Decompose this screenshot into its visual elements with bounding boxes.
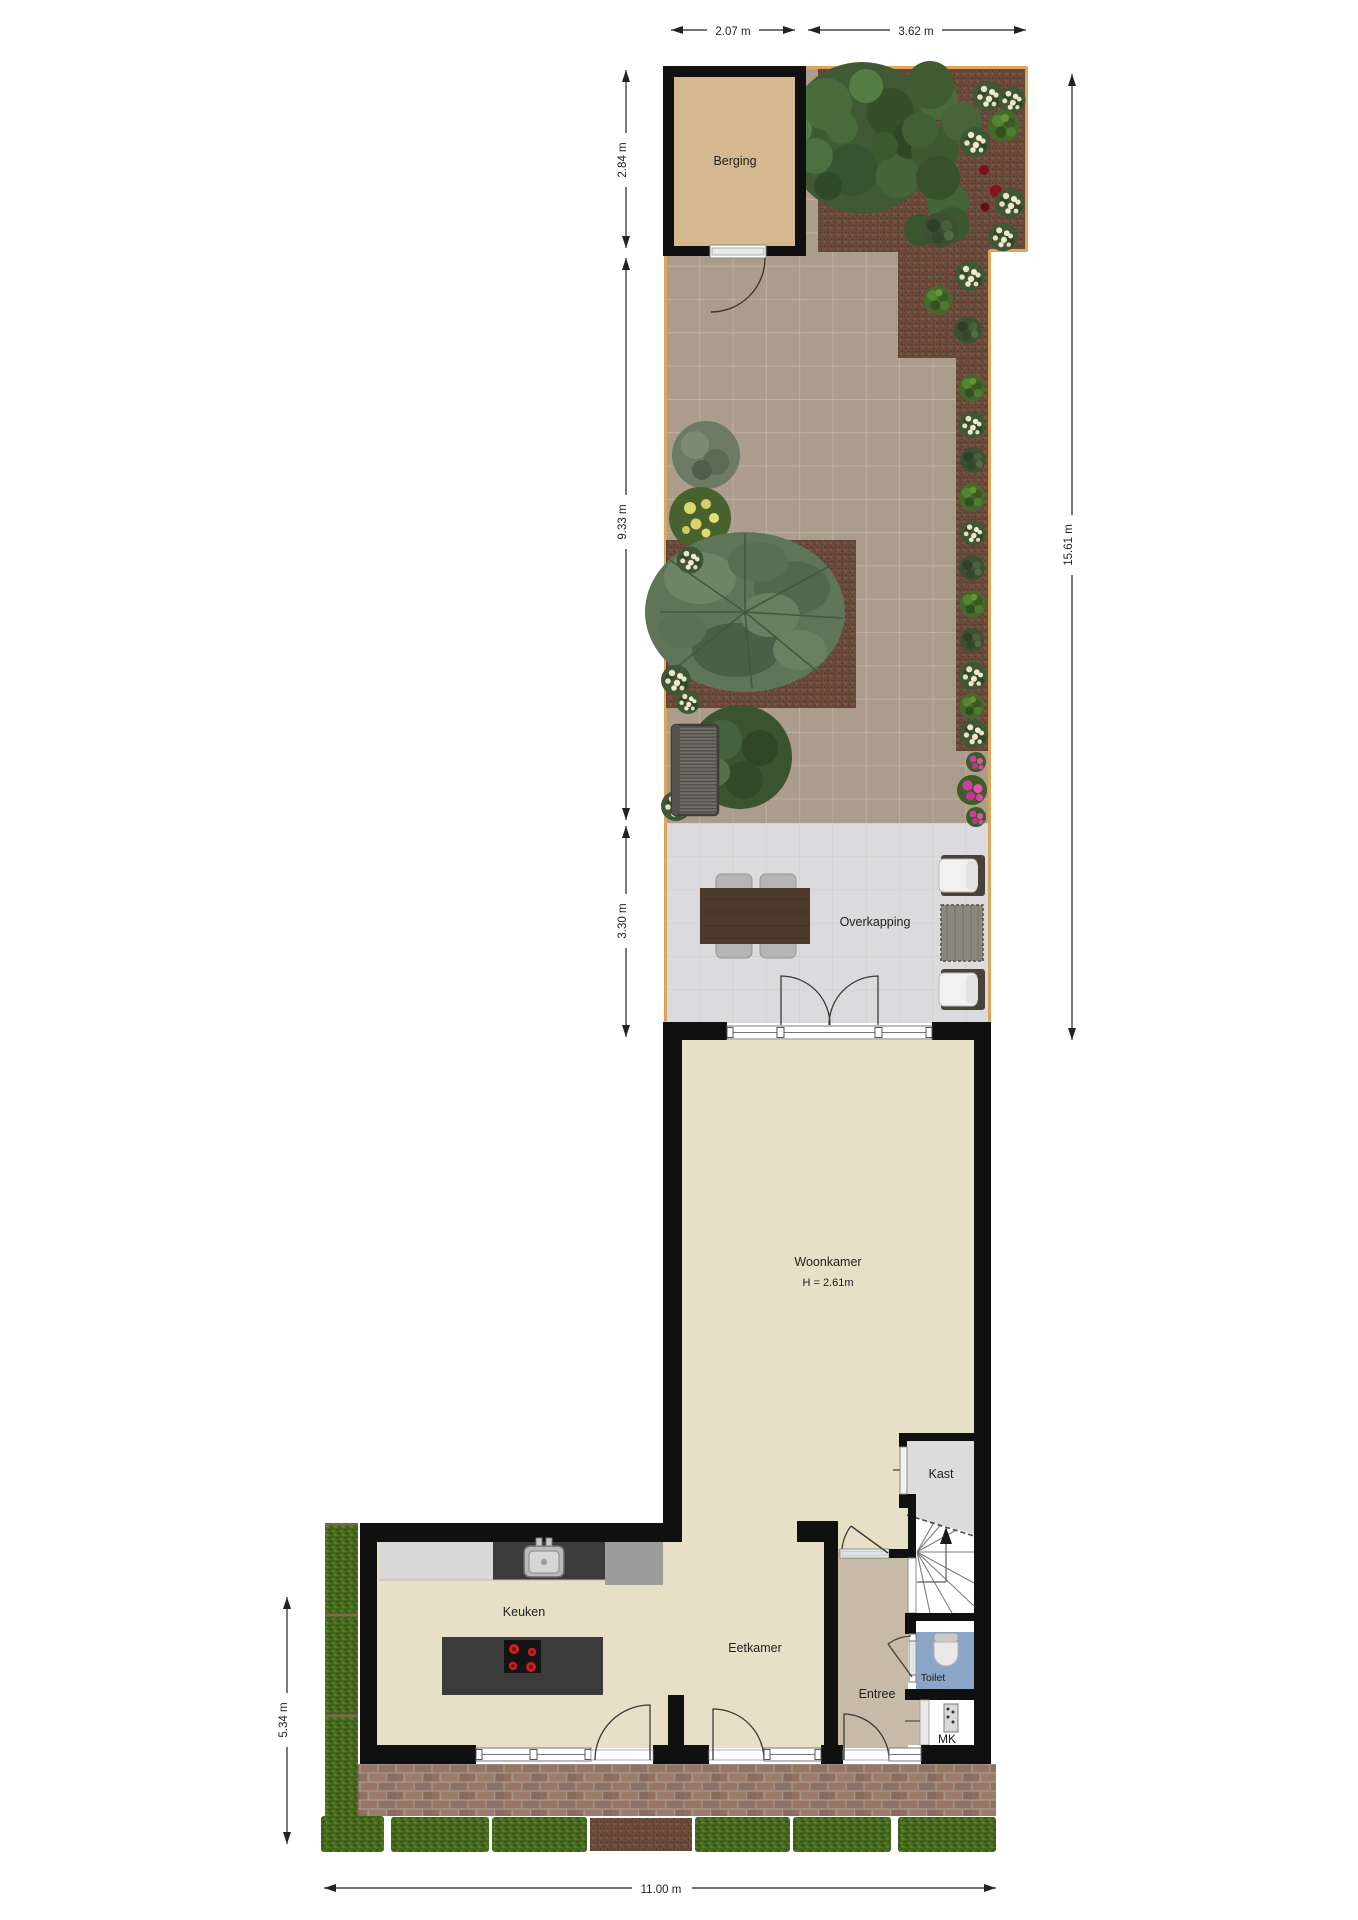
svg-text:Kast: Kast — [928, 1467, 954, 1481]
svg-text:Overkapping: Overkapping — [840, 915, 911, 929]
svg-text:5.34 m: 5.34 m — [278, 1702, 290, 1737]
svg-text:3.62 m: 3.62 m — [898, 26, 933, 38]
svg-text:Keuken: Keuken — [503, 1605, 545, 1619]
svg-text:2.07 m: 2.07 m — [715, 26, 750, 38]
svg-text:Woonkamer: Woonkamer — [794, 1255, 861, 1269]
svg-text:3.30 m: 3.30 m — [617, 903, 629, 938]
svg-text:Toilet: Toilet — [921, 1672, 946, 1684]
svg-text:Eetkamer: Eetkamer — [728, 1641, 782, 1655]
svg-text:MK: MK — [938, 1732, 956, 1746]
svg-text:9.33 m: 9.33 m — [617, 504, 629, 539]
svg-text:2.84 m: 2.84 m — [617, 142, 629, 177]
svg-text:Entree: Entree — [859, 1687, 896, 1701]
svg-text:15.61 m: 15.61 m — [1063, 524, 1075, 566]
svg-text:H = 2.61m: H = 2.61m — [802, 1277, 853, 1289]
svg-text:11.00 m: 11.00 m — [641, 1884, 682, 1896]
svg-text:Berging: Berging — [713, 154, 756, 168]
